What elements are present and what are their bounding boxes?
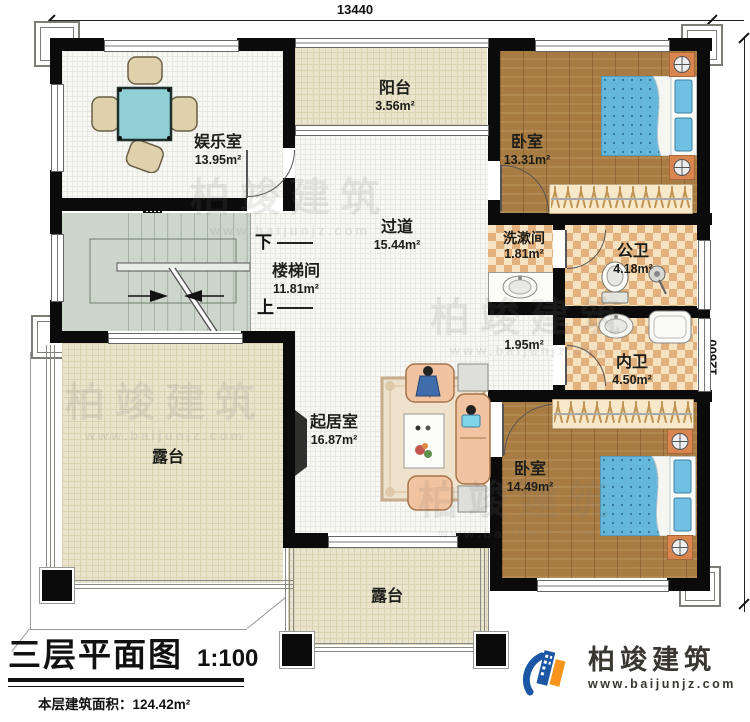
title-underline-2 (8, 686, 244, 687)
lower-roof-outline (30, 352, 31, 630)
wall (488, 213, 712, 225)
wall (488, 38, 535, 51)
wall (50, 198, 247, 211)
window (698, 318, 711, 392)
terrace-railing (480, 548, 490, 645)
stairs-down-label: 下 (255, 228, 272, 253)
label-stairwell: 楼梯间11.81m² (272, 263, 320, 297)
wardrobe-bottom (552, 399, 694, 429)
label-bedroom-top: 卧室13.31m² (504, 134, 551, 168)
wall (490, 578, 537, 591)
terrace-railing (72, 580, 293, 592)
label-living: 起居室16.87m² (310, 414, 358, 448)
wall (50, 38, 62, 84)
title-block: 三层平面图1:100 本层建筑面积：124.42m² 层高：3.3m (8, 628, 258, 722)
bed-top (601, 76, 697, 156)
nightstand (667, 429, 693, 454)
title-underline (8, 678, 244, 682)
label-private-bath: 内卫4.50m² (612, 354, 652, 388)
window (51, 234, 64, 302)
sofa-set (376, 362, 492, 514)
plan-scale: 1:100 (197, 645, 258, 672)
wall (553, 318, 565, 345)
vanity-sink (496, 273, 548, 301)
wall (697, 390, 710, 580)
tv (295, 410, 307, 476)
bath-sink (596, 312, 636, 340)
terrace-pillar (40, 568, 74, 603)
lower-roof-outline (247, 597, 286, 629)
wall (667, 578, 710, 591)
wall (697, 38, 710, 240)
nightstand (669, 155, 695, 180)
stairs-down-leader (277, 242, 313, 244)
game-table-and-chairs (88, 55, 200, 173)
wall (241, 331, 295, 343)
terrace-railing (288, 643, 488, 655)
wall (283, 343, 295, 548)
window (537, 580, 669, 592)
wall (283, 533, 328, 548)
wall (283, 178, 295, 211)
label-corridor: 过道15.44m² (374, 219, 421, 253)
wall (50, 331, 108, 343)
window (108, 333, 243, 344)
brand-name: 柏竣建筑 (588, 647, 736, 674)
stairs-up-label: 上 (257, 293, 274, 318)
wardrobe-top (549, 184, 693, 214)
wall (283, 40, 295, 148)
nightstand (669, 52, 695, 77)
wall (488, 51, 500, 161)
label-washroom: 洗漱间1.81m² (503, 230, 545, 261)
balcony-parapet (295, 38, 489, 48)
wall (488, 302, 557, 315)
dimension-line-top (50, 20, 744, 21)
terrace-pillar (474, 632, 508, 668)
floor-area-line: 本层建筑面积：124.42m² (38, 693, 258, 713)
terrace-railing (46, 345, 58, 592)
label-bedroom-bottom: 卧室14.49m² (507, 461, 554, 495)
room-corridor-floor (295, 134, 488, 213)
window (104, 40, 239, 52)
terrace-pillar (280, 632, 314, 668)
label-niche-area: 1.95m² (504, 338, 544, 353)
label-public-bath: 公卫4.18m² (613, 243, 653, 277)
terrace-sliding-door (328, 536, 458, 548)
label-terrace-bottom: 露台 (371, 588, 403, 607)
window (51, 84, 64, 172)
bathtub (648, 310, 692, 344)
brand-logo: 柏竣建筑 www.baijunjz.com (520, 640, 736, 698)
brand-logo-icon (520, 640, 578, 698)
balcony-sliding-door (295, 125, 489, 136)
dimension-line-right (744, 38, 745, 612)
bed-bottom (600, 456, 696, 536)
nightstand (667, 535, 693, 560)
label-entertainment: 娱乐室13.95m² (194, 134, 242, 168)
label-balcony: 阳台3.56m² (375, 80, 415, 114)
terrace-railing (285, 548, 295, 645)
label-terrace-left: 露台 (152, 449, 184, 468)
stair-edge (250, 213, 251, 331)
dimension-top-label: 13440 (305, 2, 405, 17)
window (698, 240, 711, 310)
window (535, 40, 670, 52)
stairs-up-leader (277, 307, 313, 309)
stairwell-stairs (62, 213, 250, 331)
wall (553, 213, 565, 230)
brand-url: www.baijunjz.com (588, 677, 736, 691)
plan-title: 三层平面图 (8, 628, 183, 676)
floor-plan-canvas: 13440 12600 (0, 0, 750, 722)
